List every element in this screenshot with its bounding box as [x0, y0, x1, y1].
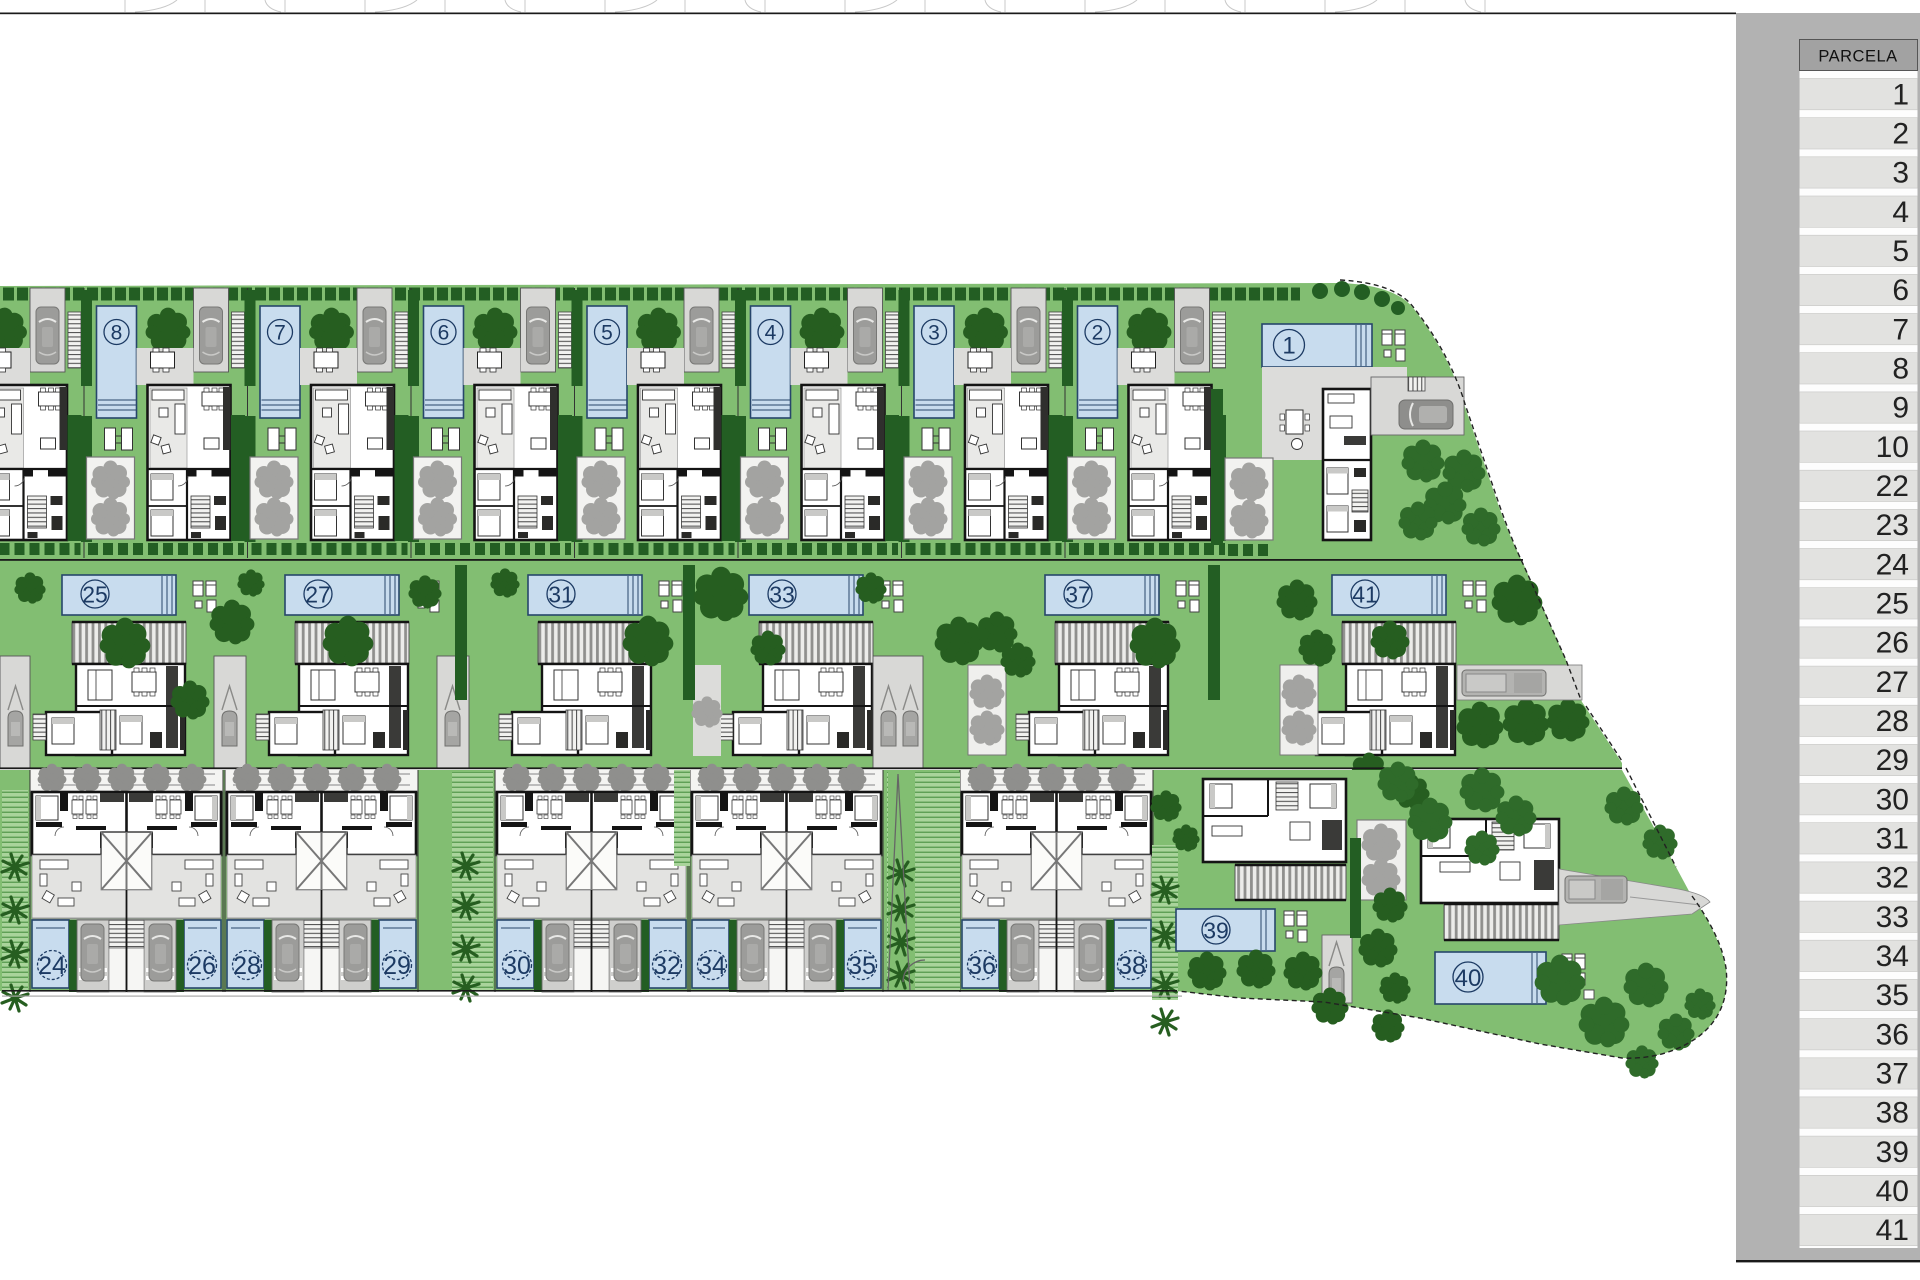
svg-text:7: 7 — [1892, 313, 1909, 346]
svg-text:30: 30 — [503, 952, 531, 980]
svg-text:9: 9 — [1892, 392, 1909, 425]
svg-text:34: 34 — [1876, 940, 1909, 973]
svg-text:24: 24 — [1876, 548, 1909, 581]
svg-text:39: 39 — [1876, 1136, 1909, 1169]
svg-text:37: 37 — [1876, 1058, 1909, 1091]
svg-text:1: 1 — [1892, 78, 1909, 111]
svg-text:23: 23 — [1876, 509, 1909, 542]
svg-text:22: 22 — [1876, 470, 1909, 503]
svg-text:3: 3 — [928, 322, 940, 345]
svg-text:35: 35 — [1876, 979, 1909, 1012]
svg-text:30: 30 — [1876, 783, 1909, 816]
svg-text:40: 40 — [1876, 1175, 1909, 1208]
svg-text:24: 24 — [38, 952, 66, 980]
svg-text:6: 6 — [438, 322, 450, 345]
svg-text:2: 2 — [1092, 322, 1104, 345]
svg-text:10: 10 — [1876, 431, 1909, 464]
svg-text:33: 33 — [1876, 901, 1909, 934]
svg-text:4: 4 — [1892, 196, 1909, 229]
svg-text:4: 4 — [765, 322, 777, 345]
svg-text:1: 1 — [1282, 333, 1295, 360]
svg-text:25: 25 — [82, 582, 108, 608]
svg-text:2: 2 — [1892, 118, 1909, 151]
svg-text:38: 38 — [1876, 1097, 1909, 1130]
svg-text:32: 32 — [1876, 862, 1909, 895]
svg-text:26: 26 — [188, 952, 216, 980]
svg-text:32: 32 — [653, 952, 681, 980]
svg-text:5: 5 — [601, 322, 613, 345]
svg-text:25: 25 — [1876, 588, 1909, 621]
svg-text:27: 27 — [1876, 666, 1909, 699]
svg-text:31: 31 — [1876, 823, 1909, 856]
svg-text:8: 8 — [1892, 353, 1909, 386]
svg-text:27: 27 — [305, 582, 331, 608]
svg-text:39: 39 — [1203, 918, 1229, 944]
svg-text:38: 38 — [1118, 952, 1146, 980]
svg-text:26: 26 — [1876, 627, 1909, 660]
svg-text:35: 35 — [848, 952, 876, 980]
svg-text:29: 29 — [1876, 744, 1909, 777]
svg-text:41: 41 — [1876, 1214, 1909, 1247]
svg-text:40: 40 — [1455, 965, 1482, 992]
svg-text:8: 8 — [111, 322, 123, 345]
svg-text:6: 6 — [1892, 274, 1909, 307]
svg-text:29: 29 — [383, 952, 411, 980]
svg-text:31: 31 — [548, 582, 574, 608]
svg-text:41: 41 — [1352, 582, 1378, 608]
svg-text:28: 28 — [1876, 705, 1909, 738]
svg-text:36: 36 — [1876, 1018, 1909, 1051]
svg-text:34: 34 — [698, 952, 726, 980]
svg-text:PARCELA: PARCELA — [1818, 48, 1897, 66]
svg-text:37: 37 — [1065, 582, 1091, 608]
svg-text:33: 33 — [769, 582, 795, 608]
svg-text:7: 7 — [274, 322, 286, 345]
svg-text:3: 3 — [1892, 157, 1909, 190]
svg-text:5: 5 — [1892, 235, 1909, 268]
svg-text:28: 28 — [233, 952, 261, 980]
svg-text:36: 36 — [968, 952, 996, 980]
